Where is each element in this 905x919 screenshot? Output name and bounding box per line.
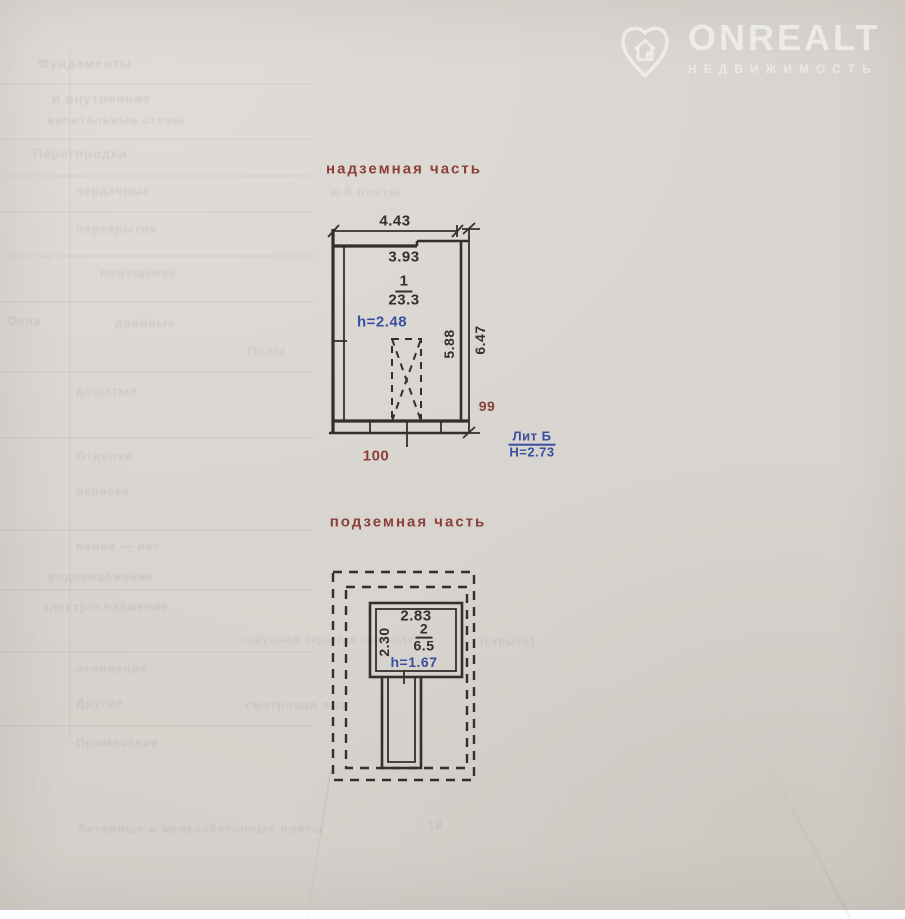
- dim-5-88-label: 5.88: [441, 329, 457, 358]
- point-mark-100: 100: [363, 448, 390, 465]
- stair-hatch-symbol: [392, 339, 421, 421]
- scanned-floorplan-page: Фундаментыи внутренниекапитальные стеныП…: [0, 0, 905, 910]
- bleedthrough-table-rules: [0, 50, 315, 740]
- above-ground-title: надземная часть: [326, 161, 482, 178]
- room-1-number-area: 1 23.3: [388, 274, 419, 309]
- liter-height: Н=2.73: [509, 446, 554, 460]
- room-1-number: 1: [396, 274, 413, 293]
- room-2-number-area: 2 6.5: [414, 622, 435, 655]
- liter-b-block: Лит Б Н=2.73: [509, 430, 556, 461]
- underground-title: подземная часть: [330, 514, 487, 531]
- room-2-area: 6.5: [414, 639, 435, 654]
- point-mark-99: 99: [479, 398, 496, 414]
- room-2-height-label: h=1.67: [391, 654, 438, 670]
- dim-6-47-label: 6.47: [472, 325, 488, 354]
- room-2-number: 2: [416, 622, 432, 639]
- dim-4-43-label: 4.43: [379, 213, 410, 230]
- dim-2-30-label: 2.30: [376, 627, 392, 656]
- underground-plan-linework: [333, 572, 474, 780]
- liter-label: Лит Б: [509, 430, 556, 446]
- dim-3-93-label: 3.93: [388, 249, 419, 266]
- room-1-height-label: h=2.48: [357, 314, 407, 331]
- room-1-area: 23.3: [388, 292, 419, 309]
- floorplan-linework: [0, 0, 905, 910]
- inspection-pit-shaft: [382, 678, 421, 768]
